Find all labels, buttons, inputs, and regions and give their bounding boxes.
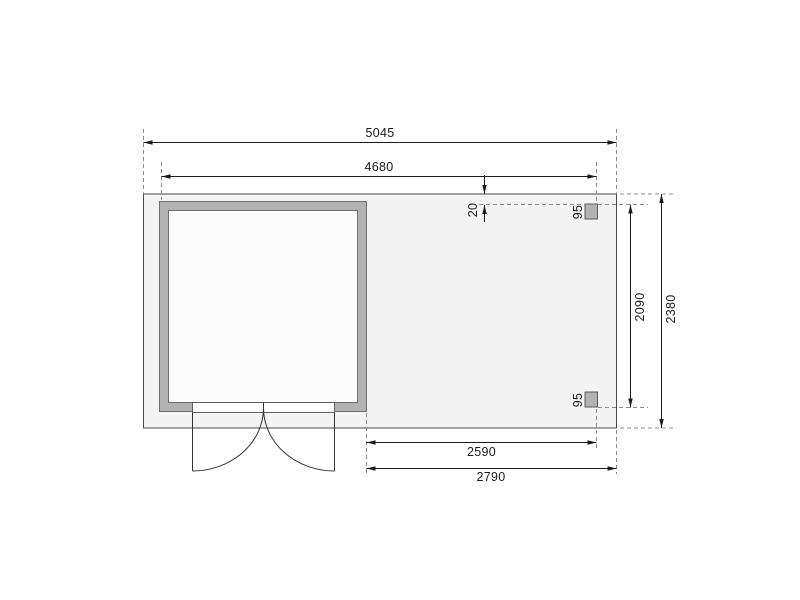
dim-label-post-size-bottom: 95 — [571, 393, 585, 408]
dim-label-front-offset: 20 — [466, 203, 480, 218]
floor-plan-canvas: 5045 4680 20 95 95 2090 2380 2590 2790 — [0, 0, 800, 600]
floor-plan-drawing: 5045 4680 20 95 95 2090 2380 2590 2790 — [0, 0, 800, 600]
post-top-right — [585, 204, 598, 219]
post-bottom-right — [585, 392, 598, 407]
dim-label-post-depth-span: 2090 — [633, 292, 647, 321]
dim-label-frame-width: 4680 — [364, 160, 393, 174]
dim-label-annex-width: 2790 — [476, 470, 505, 484]
cabin-interior — [169, 211, 358, 403]
dim-label-total-width: 5045 — [365, 126, 394, 140]
dim-label-total-depth: 2380 — [664, 294, 678, 323]
dim-label-annex-inner-width: 2590 — [467, 445, 496, 459]
dim-label-post-size-top: 95 — [571, 205, 585, 220]
